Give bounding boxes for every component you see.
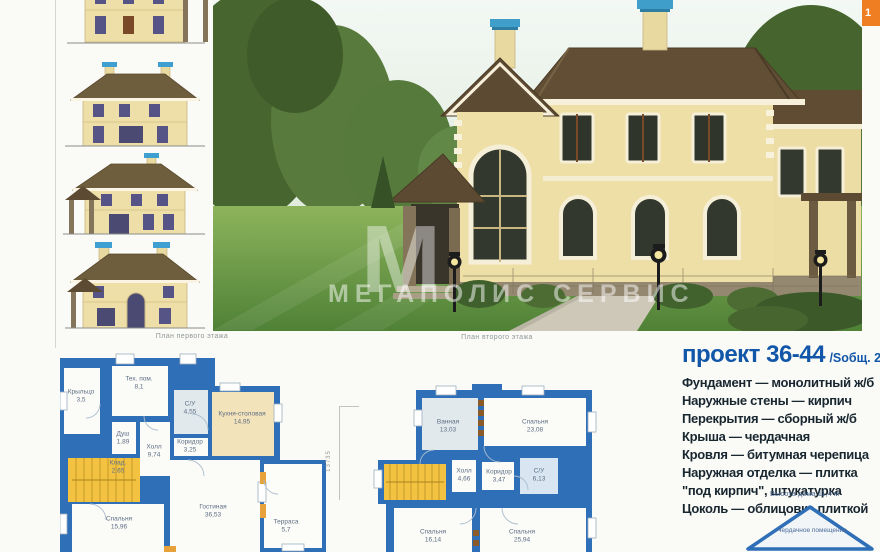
project-total-area: /Sобщ. 212,05 м² <box>829 351 880 365</box>
plan2-caption: План второго этажа <box>432 334 562 341</box>
plan1-caption: План первого этажа <box>127 333 257 340</box>
room-label: С/У6,13 <box>533 468 546 483</box>
spec-line: Крыша — чердачная <box>682 428 878 446</box>
room-label: Душ1,89 <box>116 431 129 446</box>
floor-plan-2: Ванная13,03 Спальня23,08 Холл4,66 Коридо… <box>372 382 617 552</box>
room-label: Тех. пом.8,1 <box>125 376 152 391</box>
page-number: 1 <box>865 0 871 26</box>
house-rendering: М МЕГАПОЛИС СЕРВИС <box>213 0 862 331</box>
room-label: Ванная13,03 <box>437 419 459 434</box>
page-fold-line <box>55 0 56 348</box>
room-label: Гостиная36,53 <box>199 504 226 519</box>
elevation-drawing-2 <box>57 58 213 153</box>
room-label: Коридор3,25 <box>177 439 203 454</box>
dimension-tick <box>339 406 359 407</box>
dimension-line <box>339 406 340 500</box>
attic-room-label: Чердачное помещение <box>776 527 848 534</box>
floor-plan-1: Крыльцо3,5 Тех. пом.8,1 С/У4,55 Кухня-ст… <box>60 352 335 552</box>
project-title: проект 36-44 <box>682 341 825 368</box>
house-height-note: Высота дома 11,4 м <box>770 489 839 498</box>
room-label: Холл9,74 <box>146 444 161 459</box>
room-label: Клад.2,65 <box>110 460 127 475</box>
room-label: Спальня15,96 <box>106 516 132 531</box>
spec-line: Перекрытия — сборный ж/б <box>682 410 878 428</box>
room-label: Терраса5,7 <box>274 519 299 534</box>
watermark-text: МЕГАПОЛИС СЕРВИС <box>328 280 658 309</box>
page-number-tab: 1 <box>862 0 880 26</box>
spec-line: Фундамент — монолитный ж/б <box>682 374 878 392</box>
room-label: Крыльцо3,5 <box>68 389 95 404</box>
catalog-page: М МЕГАПОЛИС СЕРВИС 1 План первого этажа … <box>0 0 880 552</box>
room-label: Спальня25,94 <box>509 529 535 544</box>
room-label: Спальня23,08 <box>522 419 548 434</box>
dimension-value: 13735 <box>326 450 332 472</box>
room-label: Кухня-столовая14,95 <box>218 411 265 426</box>
room-label: С/У4,55 <box>184 401 197 416</box>
room-label: Спальня16,14 <box>420 529 446 544</box>
floor-plan-2-svg <box>372 382 617 552</box>
spec-line: Кровля — битумная черепица <box>682 446 878 464</box>
room-label: Холл4,66 <box>456 468 471 483</box>
elevation-drawing-3 <box>57 152 213 240</box>
room-label: Коридор3,47 <box>486 469 512 484</box>
spec-line: Наружные стены — кирпич <box>682 392 878 410</box>
elevation-drawing-1 <box>57 0 213 58</box>
elevation-drawing-4 <box>57 240 213 335</box>
